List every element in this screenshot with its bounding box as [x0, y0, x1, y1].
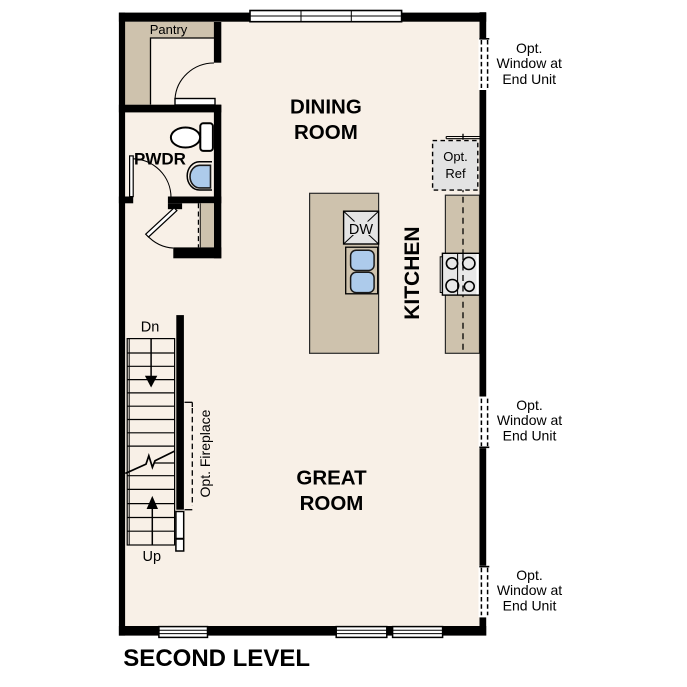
svg-text:PWDR: PWDR [134, 150, 186, 169]
svg-text:SECOND LEVEL: SECOND LEVEL [123, 645, 310, 672]
svg-text:DINING: DINING [290, 96, 362, 119]
svg-text:DW: DW [349, 222, 373, 238]
svg-text:Window at: Window at [497, 55, 562, 71]
svg-text:Window at: Window at [497, 582, 562, 598]
svg-text:Opt.: Opt. [516, 567, 542, 583]
svg-text:Opt.: Opt. [443, 149, 468, 164]
svg-text:ROOM: ROOM [294, 121, 358, 144]
svg-text:Opt.: Opt. [516, 40, 542, 56]
svg-text:Ref: Ref [445, 166, 466, 181]
svg-text:End Unit: End Unit [503, 427, 557, 443]
svg-text:Pantry: Pantry [150, 22, 188, 37]
svg-text:End Unit: End Unit [502, 71, 556, 87]
svg-text:GREAT: GREAT [296, 467, 367, 490]
svg-text:End Unit: End Unit [503, 598, 557, 614]
svg-text:Opt.: Opt. [516, 397, 542, 413]
svg-text:Up: Up [143, 549, 162, 565]
svg-text:Opt. Fireplace: Opt. Fireplace [197, 409, 213, 497]
svg-text:ROOM: ROOM [300, 492, 364, 515]
svg-text:Window at: Window at [497, 412, 562, 428]
svg-text:Dn: Dn [141, 320, 160, 336]
svg-text:KITCHEN: KITCHEN [401, 226, 424, 319]
